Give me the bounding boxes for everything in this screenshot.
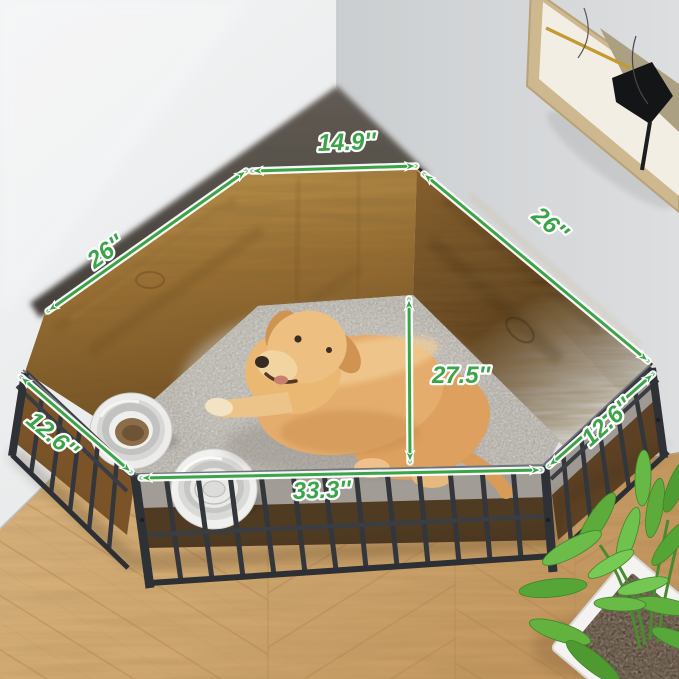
screw xyxy=(140,518,144,522)
bowl-food-dark xyxy=(122,425,144,441)
dog-eye xyxy=(326,347,332,353)
bowl-plate-center xyxy=(203,481,225,497)
dimension-back-width-label: 14.9'' xyxy=(317,128,377,157)
dog-tongue xyxy=(274,376,288,385)
corner-dog-playpen-product-image: 14.9'' 26'' 26'' 12.6'' 12.6'' 27.5'' 33… xyxy=(0,0,679,679)
dimension-front-width-label: 33.3'' xyxy=(292,476,352,505)
dimension-height-line xyxy=(409,299,410,462)
screw xyxy=(656,418,660,422)
dog-nose xyxy=(255,356,269,368)
dog-eye xyxy=(294,335,301,342)
screw xyxy=(546,518,550,522)
dog-belly-shade xyxy=(280,410,420,454)
scene: 14.9'' 26'' 26'' 12.6'' 12.6'' 27.5'' 33… xyxy=(0,0,679,679)
dimension-height-label: 27.5'' xyxy=(431,362,491,389)
